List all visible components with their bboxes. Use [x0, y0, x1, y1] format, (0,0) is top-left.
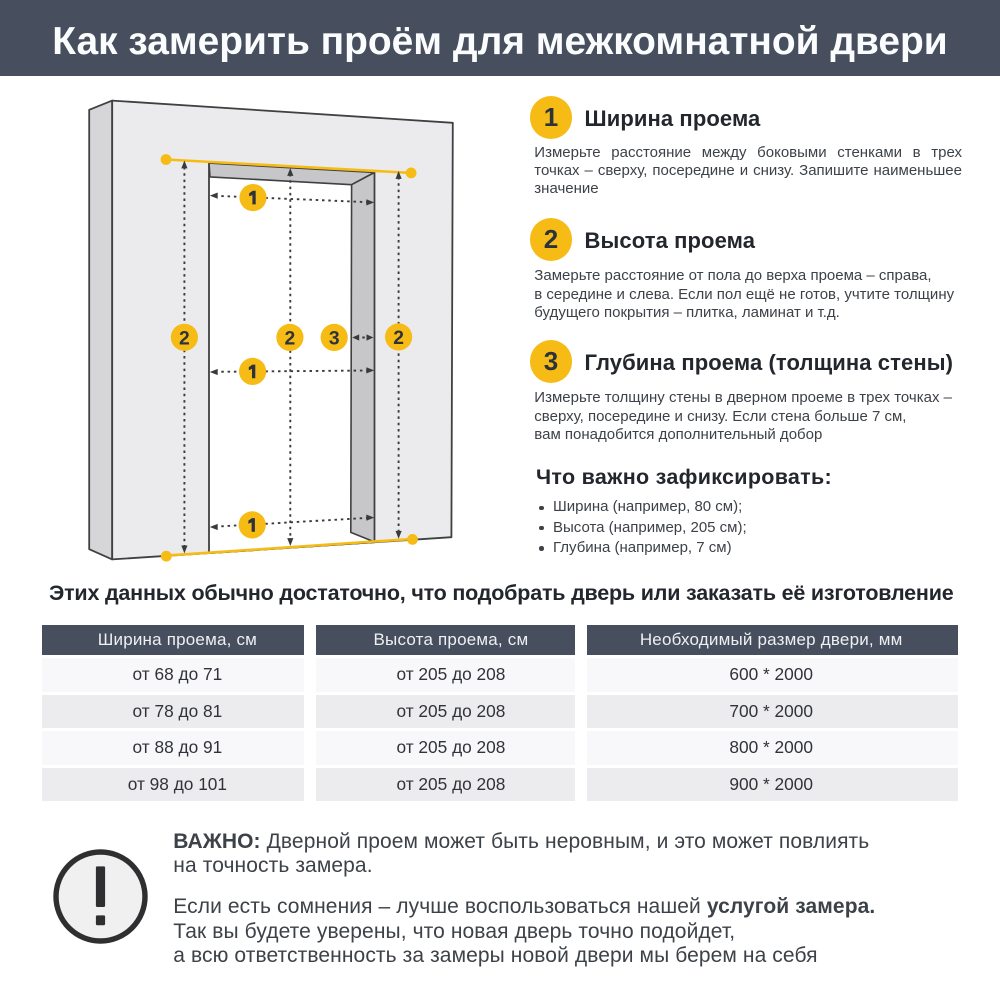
svg-text:2: 2	[179, 328, 190, 349]
svg-text:2: 2	[285, 328, 296, 349]
svg-text:3: 3	[329, 328, 340, 349]
svg-text:2: 2	[393, 328, 404, 349]
